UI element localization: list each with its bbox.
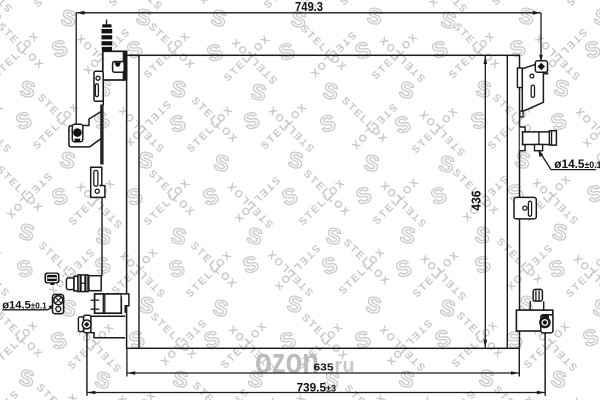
svg-text:ø14.5±0.1: ø14.5±0.1 <box>554 157 600 171</box>
svg-text:436: 436 <box>469 191 484 211</box>
svg-text:635: 635 <box>314 362 334 374</box>
svg-text:739.5±3: 739.5±3 <box>297 380 336 394</box>
svg-text:ozon: ozon <box>255 340 319 381</box>
svg-text:749.3: 749.3 <box>295 0 323 14</box>
